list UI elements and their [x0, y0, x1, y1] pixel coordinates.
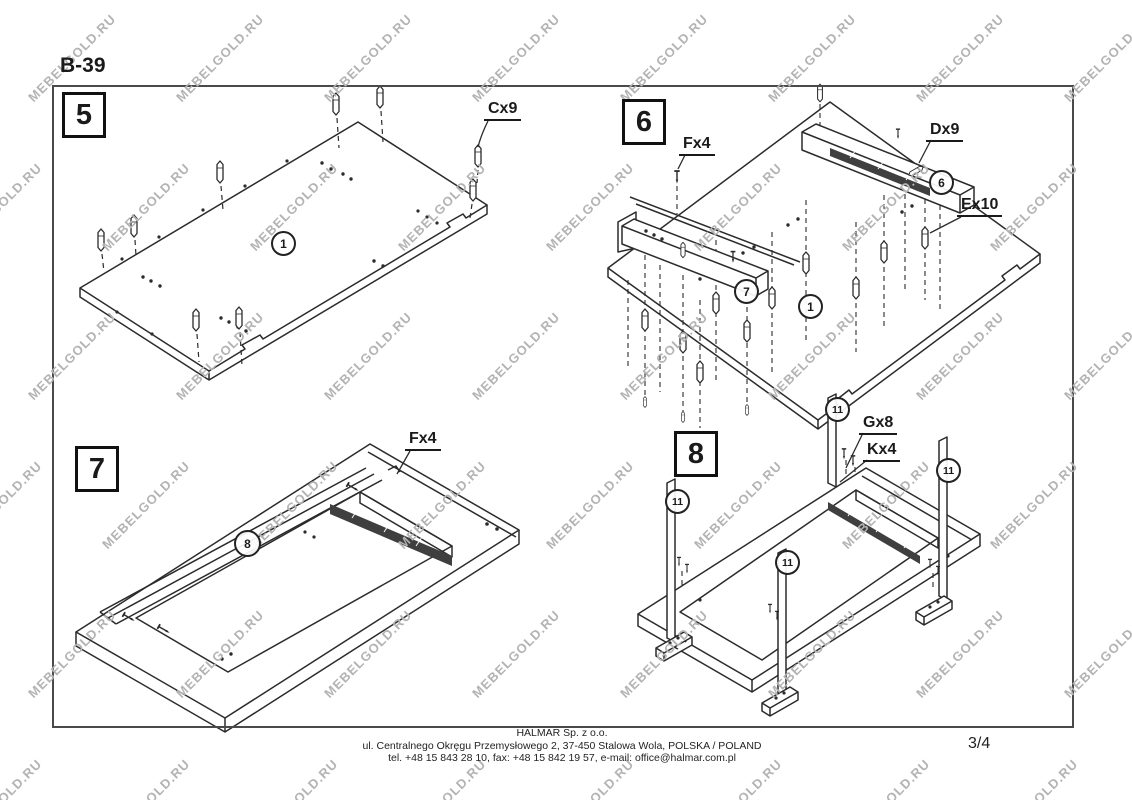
- footer-company: HALMAR Sp. z o.o.: [200, 727, 924, 740]
- part-marker-11-b: 11: [936, 458, 961, 483]
- watermark-text: MEBELGOLD.RU: [987, 756, 1081, 800]
- watermark-text: MEBELGOLD.RU: [0, 756, 45, 800]
- step-number-5: 5: [62, 92, 106, 138]
- part-marker-8: 8: [234, 530, 261, 557]
- hardware-label-fx4-step6: Fx4: [679, 135, 715, 156]
- hardware-label-gx8: Gx8: [859, 414, 897, 435]
- part-marker-11-d: 11: [775, 550, 800, 575]
- part-marker-1-step5: 1: [271, 231, 296, 256]
- hardware-label-cx9: Cx9: [484, 100, 521, 121]
- hardware-label-kx4: Kx4: [863, 441, 900, 462]
- footer: HALMAR Sp. z o.o. ul. Centralnego Okręgu…: [200, 727, 924, 765]
- hardware-label-ex10: Ex10: [957, 196, 1002, 217]
- page-number: 3/4: [968, 735, 990, 753]
- content-border: [52, 85, 1074, 728]
- step-number-8: 8: [674, 431, 718, 477]
- instruction-sheet: MEBELGOLD.RUMEBELGOLD.RUMEBELGOLD.RUMEBE…: [0, 0, 1132, 800]
- part-marker-11-c: 11: [665, 489, 690, 514]
- part-marker-1-step6: 1: [798, 294, 823, 319]
- part-marker-11-a: 11: [825, 397, 850, 422]
- footer-address: ul. Centralnego Okręgu Przemysłowego 2, …: [200, 740, 924, 753]
- part-marker-7: 7: [734, 279, 759, 304]
- watermark-text: MEBELGOLD.RU: [99, 756, 193, 800]
- part-marker-6: 6: [929, 170, 954, 195]
- hardware-label-dx9: Dx9: [926, 121, 963, 142]
- watermark-text: MEBELGOLD.RU: [0, 160, 45, 254]
- step-number-7: 7: [75, 446, 119, 492]
- step-number-6: 6: [622, 99, 666, 145]
- model-number: B-39: [60, 54, 106, 78]
- footer-contact: tel. +48 15 843 28 10, fax: +48 15 842 1…: [200, 752, 924, 765]
- hardware-label-fx4-step7: Fx4: [405, 430, 441, 451]
- watermark-text: MEBELGOLD.RU: [0, 458, 45, 552]
